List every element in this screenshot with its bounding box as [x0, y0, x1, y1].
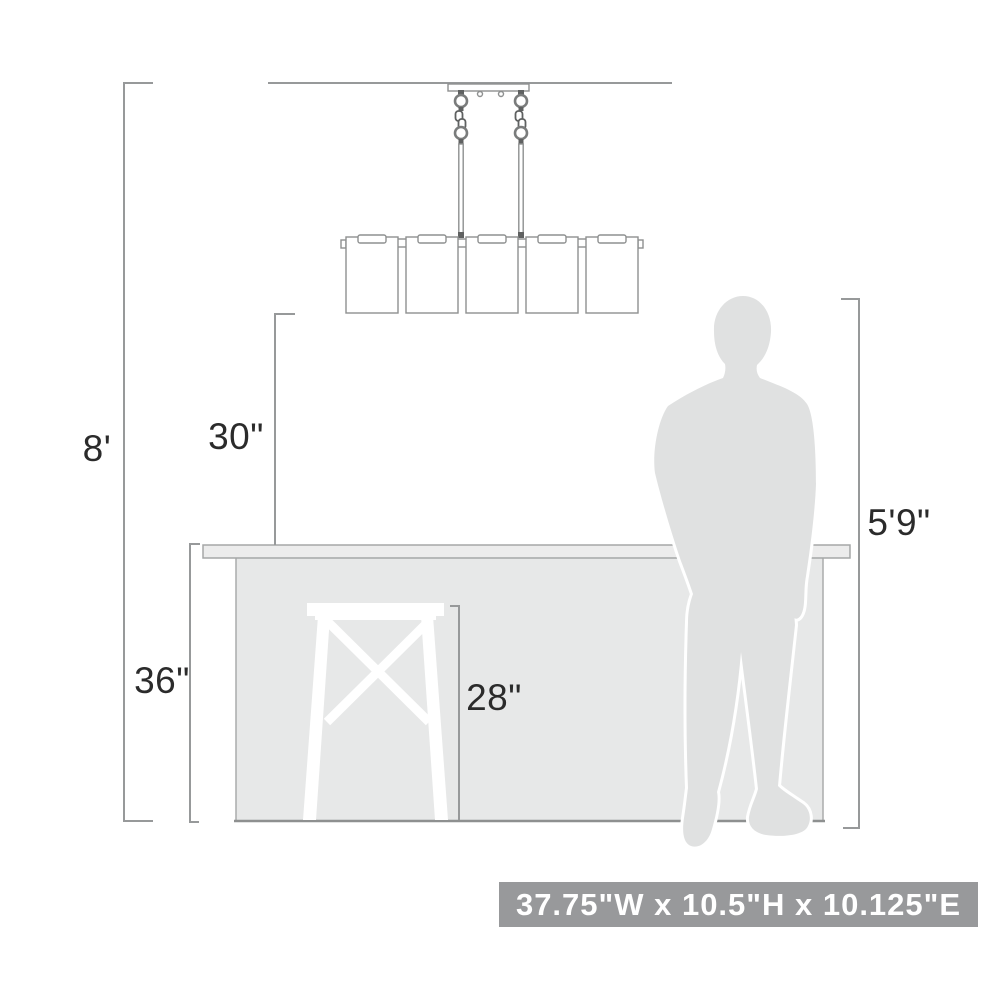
label-person-height: 5'9" — [867, 502, 930, 544]
dim-line-8ft — [124, 83, 153, 821]
shade-3 — [466, 235, 518, 313]
size-badge: 37.75"W x 10.5"H x 10.125"E — [499, 882, 978, 927]
shade-4 — [526, 235, 578, 313]
end-tab-right — [638, 240, 643, 248]
dimension-diagram: 8' 30" 36" 28" 5'9" 37.75"W x 10.5"H x 1… — [0, 0, 1000, 1000]
suspension-chain-right — [515, 90, 527, 238]
diagram-artwork — [0, 0, 1000, 1000]
dim-line-30in — [275, 314, 295, 545]
label-ceiling-height: 8' — [83, 428, 112, 470]
dim-line-5ft9in — [841, 299, 859, 828]
stem-left — [459, 144, 463, 234]
shade-5 — [586, 235, 638, 313]
stem-right — [519, 144, 523, 234]
dim-line-36in — [190, 544, 200, 822]
label-stool-height: 28" — [466, 677, 522, 719]
label-counter-height: 36" — [134, 660, 190, 702]
canopy — [448, 84, 529, 91]
end-tab-left — [341, 240, 346, 248]
shade-2 — [406, 235, 458, 313]
suspension-chain-left — [455, 90, 467, 238]
shade-1 — [346, 235, 398, 313]
chandelier — [341, 84, 643, 313]
label-fixture-to-counter: 30" — [208, 416, 264, 458]
stool-seat — [307, 603, 444, 616]
